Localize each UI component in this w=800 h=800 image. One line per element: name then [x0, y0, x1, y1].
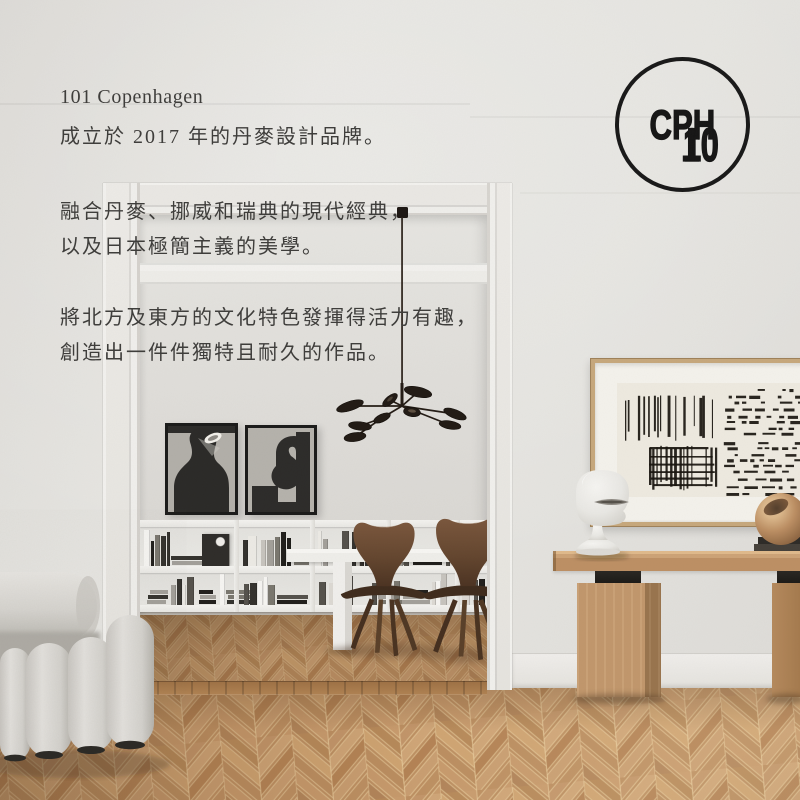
book-spine: [319, 582, 327, 605]
wall-art-left: [165, 423, 238, 515]
console-leg-shadow: [766, 694, 800, 704]
intro-line: 成立於 2017 年的丹麥設計品牌。: [60, 120, 386, 149]
dining-chair: [339, 518, 429, 658]
boucle-lounge-chair: [0, 536, 166, 800]
book-spine: [275, 537, 280, 566]
brand-lifestyle-image: 101 Copenhagen 成立於 2017 年的丹麥設計品牌。 融合丹麥、挪…: [0, 0, 800, 800]
book-stack: [277, 595, 307, 599]
book-spine: [177, 579, 182, 605]
book-spine: [220, 574, 225, 605]
leaning-print: [202, 534, 229, 566]
book-spine: [187, 577, 194, 605]
abstract-bust-print: [168, 426, 235, 512]
wall-art-right-small: [245, 425, 317, 515]
book-stack: [171, 556, 202, 560]
book-stack: [199, 590, 214, 594]
book-stack: [200, 595, 216, 599]
bookshelf-divider: [310, 520, 315, 612]
wall-molding-line: [520, 192, 800, 194]
book-spine: [171, 585, 176, 605]
logo-cph-text: CPH: [650, 107, 716, 142]
intro-line: 融合丹麥、挪威和瑞典的現代經典，: [60, 195, 412, 224]
book-stack: [199, 600, 216, 604]
book-spine: [268, 585, 275, 605]
sculpture: [556, 460, 648, 564]
book-spine: [183, 585, 187, 605]
intro-line: 創造出一件件獨特且耐久的作品。: [60, 336, 390, 365]
console-leg: [577, 583, 661, 697]
console-leg: [772, 583, 800, 697]
book-spine: [267, 540, 274, 566]
book-spine: [264, 577, 268, 605]
book: [754, 544, 800, 551]
book-stack: [277, 600, 307, 604]
intro-line: 以及日本極簡主義的美學。: [60, 230, 324, 259]
book-spine: [258, 581, 263, 605]
doorway-threshold-planks: [140, 681, 487, 695]
book-spine: [167, 532, 171, 566]
bookshelf-divider: [234, 520, 239, 612]
dining-chair: [421, 514, 487, 662]
book-stack: [172, 561, 203, 565]
door-frame-right: [487, 183, 512, 690]
logo-101cph-badge: 101 CPH: [615, 57, 750, 192]
book-spine: [261, 540, 267, 566]
book-spine: [281, 532, 287, 566]
book-spine: [243, 540, 248, 566]
book-spine: [248, 536, 256, 566]
book-spine: [244, 584, 249, 605]
book-spine: [250, 583, 257, 605]
console-leg-shadow: [572, 694, 666, 704]
intro-line: 將北方及東方的文化特色發揮得活力有趣，: [60, 301, 478, 330]
brand-name-text: 101 Copenhagen: [60, 86, 203, 109]
abstract-shape-print: [248, 428, 314, 512]
